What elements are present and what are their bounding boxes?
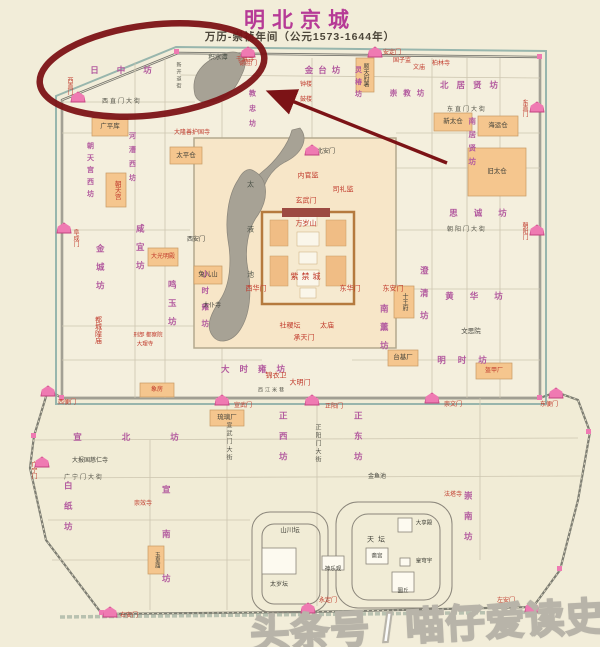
- annotation-ellipse: [34, 12, 269, 129]
- annotation-layer: [0, 0, 600, 647]
- annotation-arrow: [272, 93, 447, 163]
- map-canvas: 明北京城 万历-崇祯年间（公元1573-1644年） 日中坊金台坊灵椿坊崇教坊北…: [0, 0, 600, 647]
